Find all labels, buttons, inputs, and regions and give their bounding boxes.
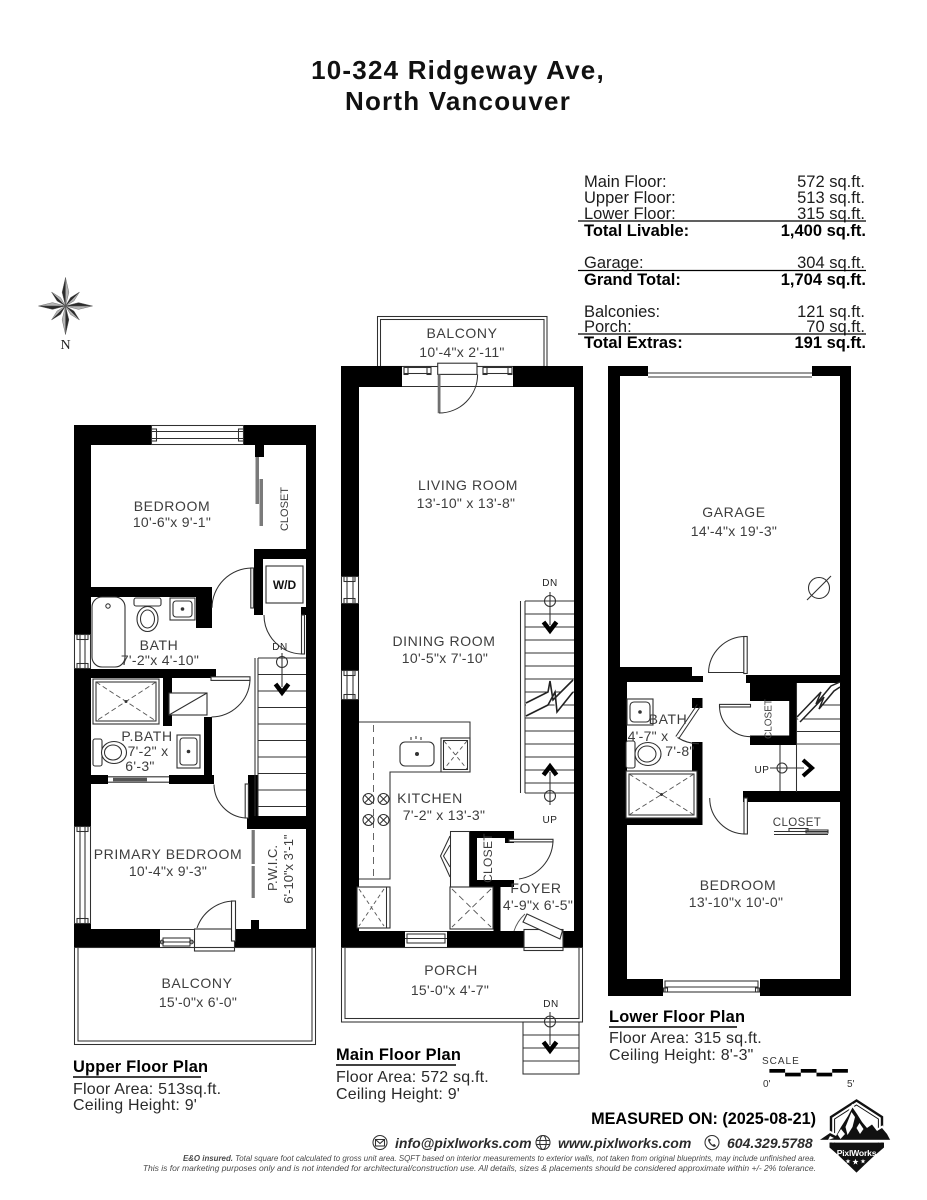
svg-text:Floor Area: 315 sq.ft.: Floor Area: 315 sq.ft. — [609, 1030, 762, 1047]
svg-text:BEDROOM: BEDROOM — [134, 498, 211, 514]
svg-text:6'-3": 6'-3" — [125, 758, 154, 774]
svg-text:SCALE: SCALE — [762, 1056, 800, 1067]
svg-text:PORCH: PORCH — [424, 962, 478, 978]
svg-text:CLOSET: CLOSET — [764, 699, 775, 739]
svg-text:Garage:: Garage: — [584, 254, 644, 272]
svg-text:W/D: W/D — [273, 578, 297, 592]
svg-text:This is for marketing purposes: This is for marketing purposes only and … — [143, 1163, 816, 1173]
svg-text:Floor Area: 572 sq.ft.: Floor Area: 572 sq.ft. — [336, 1069, 489, 1086]
svg-text:www.pixlworks.com: www.pixlworks.com — [558, 1135, 691, 1151]
svg-text:7'-2" x: 7'-2" x — [128, 743, 169, 759]
svg-text:North Vancouver: North Vancouver — [345, 86, 571, 116]
svg-text:info@pixlworks.com: info@pixlworks.com — [395, 1135, 532, 1151]
svg-text:Ceiling Height: 9': Ceiling Height: 9' — [336, 1086, 460, 1103]
svg-text:10-324 Ridgeway Ave,: 10-324 Ridgeway Ave, — [311, 55, 605, 85]
svg-text:GARAGE: GARAGE — [702, 504, 766, 520]
svg-text:PRIMARY BEDROOM: PRIMARY BEDROOM — [94, 846, 243, 862]
svg-text:Main Floor Plan: Main Floor Plan — [336, 1046, 461, 1064]
svg-text:10'-5"x 7'-10": 10'-5"x 7'-10" — [402, 650, 488, 666]
svg-text:CLOSET: CLOSET — [481, 833, 495, 883]
svg-text:BATH: BATH — [140, 637, 179, 653]
svg-text:Total Extras:: Total Extras: — [584, 334, 683, 352]
svg-text:10'-6"x 9'-1": 10'-6"x 9'-1" — [133, 514, 211, 530]
svg-text:15'-0"x 6'-0": 15'-0"x 6'-0" — [159, 994, 237, 1010]
svg-text:UP: UP — [543, 815, 558, 826]
svg-text:Lower Floor:: Lower Floor: — [584, 205, 676, 223]
svg-text:Total Livable:: Total Livable: — [584, 222, 689, 240]
svg-text:13'-10"x 10'-0": 13'-10"x 10'-0" — [689, 894, 784, 910]
svg-text:10'-4"x 2'-11": 10'-4"x 2'-11" — [419, 344, 504, 360]
svg-text:BATH: BATH — [649, 711, 688, 727]
svg-text:P.BATH: P.BATH — [121, 728, 172, 744]
svg-text:DN: DN — [543, 999, 558, 1010]
svg-text:4'-7" x: 4'-7" x — [628, 728, 669, 744]
svg-text:13'-10" x 13'-8": 13'-10" x 13'-8" — [417, 495, 516, 511]
svg-text:Ceiling Height: 8'-3": Ceiling Height: 8'-3" — [609, 1047, 754, 1064]
svg-text:Upper Floor Plan: Upper Floor Plan — [73, 1058, 208, 1076]
svg-text:BEDROOM: BEDROOM — [700, 877, 777, 893]
svg-text:N: N — [60, 338, 70, 353]
svg-text:DN: DN — [272, 642, 287, 653]
svg-text:1,400 sq.ft.: 1,400 sq.ft. — [781, 222, 866, 240]
svg-text:1,704 sq.ft.: 1,704 sq.ft. — [781, 271, 866, 289]
svg-text:15'-0"x 4'-7": 15'-0"x 4'-7" — [411, 982, 489, 998]
svg-text:BALCONY: BALCONY — [426, 325, 497, 341]
svg-text:KITCHEN: KITCHEN — [397, 790, 463, 806]
svg-text:MEASURED ON: (2025-08-21): MEASURED ON: (2025-08-21) — [591, 1110, 816, 1128]
svg-text:P.W.I.C.: P.W.I.C. — [265, 845, 280, 891]
svg-text:CLOSET: CLOSET — [773, 817, 821, 829]
svg-text:0': 0' — [763, 1079, 771, 1090]
svg-text:604.329.5788: 604.329.5788 — [727, 1135, 813, 1151]
svg-text:7'-2"x 4'-10": 7'-2"x 4'-10" — [121, 652, 199, 668]
svg-text:304 sq.ft.: 304 sq.ft. — [797, 254, 865, 272]
svg-text:Lower Floor Plan: Lower Floor Plan — [609, 1008, 745, 1026]
svg-text:CLOSET: CLOSET — [279, 487, 291, 531]
svg-text:10'-4"x 9'-3": 10'-4"x 9'-3" — [129, 863, 207, 879]
svg-text:Floor Area: 513sq.ft.: Floor Area: 513sq.ft. — [73, 1081, 221, 1098]
svg-text:4'-9"x 6'-5": 4'-9"x 6'-5" — [503, 897, 573, 913]
svg-text:7'-2" x 13'-3": 7'-2" x 13'-3" — [403, 807, 486, 823]
svg-text:6'-10"x 3'-1": 6'-10"x 3'-1" — [281, 834, 296, 903]
svg-text:Ceiling Height: 9': Ceiling Height: 9' — [73, 1097, 197, 1114]
svg-text:LIVING ROOM: LIVING ROOM — [418, 477, 518, 493]
svg-text:FOYER: FOYER — [510, 880, 561, 896]
svg-text:191 sq.ft.: 191 sq.ft. — [794, 334, 866, 352]
svg-text:E&O insured. Total square foo: E&O insured. Total square foot calculate… — [183, 1154, 816, 1163]
svg-text:DN: DN — [542, 578, 557, 589]
svg-text:315 sq.ft.: 315 sq.ft. — [797, 205, 865, 223]
svg-text:Grand Total:: Grand Total: — [584, 271, 681, 289]
svg-text:7'-8": 7'-8" — [665, 743, 694, 759]
svg-text:PixlWorks: PixlWorks — [837, 1148, 877, 1158]
svg-text:BALCONY: BALCONY — [161, 975, 232, 991]
svg-text:DINING ROOM: DINING ROOM — [392, 633, 495, 649]
svg-text:14'-4"x 19'-3": 14'-4"x 19'-3" — [691, 523, 777, 539]
svg-text:UP: UP — [755, 765, 770, 776]
svg-text:5': 5' — [847, 1079, 855, 1090]
